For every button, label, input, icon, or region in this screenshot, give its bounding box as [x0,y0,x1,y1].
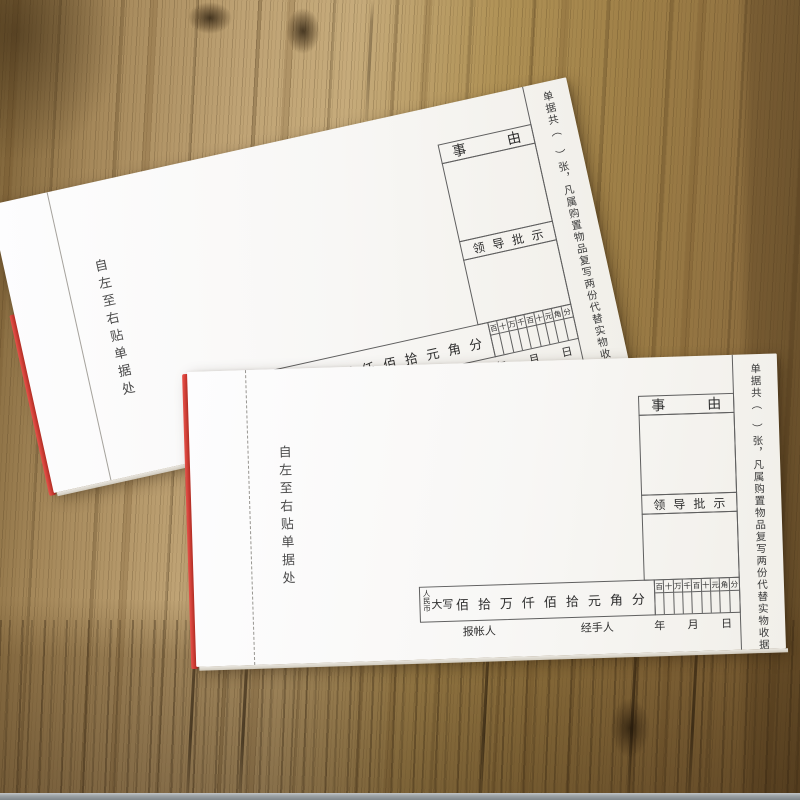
currency-label-rmb: 人民币 [422,589,431,619]
amount-digit-grid: 百 十 万 千 百 十 元 角 分 [654,577,741,616]
digit-col-header: 元 [711,578,721,591]
handler-label: 经手人 [580,619,613,636]
month-label: 月 [687,616,698,632]
left-margin-line [47,192,112,480]
paste-instruction-text: 自左至右贴单据处 [273,444,297,589]
photo-scene: 自左至右贴单据处 单据共（ ）张，凡属购置物品复写两份代替实物收据 事 由 领导… [0,0,800,800]
approval-blank-cell [642,511,740,581]
digit-col-header: 十 [701,579,711,592]
paste-form-sheet: 自左至右贴单据处 单据共（ ）张，凡属购置物品复写两份代替实物收据 事 由 领导… [187,353,786,666]
year-label: 年 [654,617,665,633]
amount-unit-characters: 佰拾万仟佰拾元角分 [455,588,654,613]
wood-knot [286,8,320,54]
receipt-pad-front: 自左至右贴单据处 单据共（ ）张，凡属购置物品复写两份代替实物收据 事 由 领导… [187,353,786,666]
side-note-text: 单据共（ ）张，凡属购置物品复写两份代替实物收据 [748,363,772,649]
currency-label: 人民币 大写 [422,589,454,620]
date-row: 年 月 日 [647,615,739,634]
wood-knot [188,2,232,34]
paste-instruction-text: 自左至右贴单据处 [88,256,138,401]
digit-col-header: 百 [692,579,702,592]
digit-col-header: 百 [655,580,665,593]
digit-col-header: 万 [673,580,683,593]
day-label: 日 [560,343,574,361]
payer-label: 报帐人 [463,622,496,639]
amount-in-words-cell: 人民币 大写 佰拾万仟佰拾元角分 [419,579,656,622]
digit-col-header: 角 [720,578,730,591]
digit-col-header: 千 [683,579,693,592]
day-label: 日 [721,615,732,631]
digit-col-header: 分 [729,578,739,591]
digit-entry-cell [730,591,740,612]
left-margin-line [245,370,255,665]
reason-blank-cell [639,412,737,496]
currency-label-daxie: 大写 [431,596,453,613]
digit-col-header: 十 [664,580,674,593]
table-edge-strip [0,793,800,800]
approval-label: 领导批示 [645,493,734,513]
